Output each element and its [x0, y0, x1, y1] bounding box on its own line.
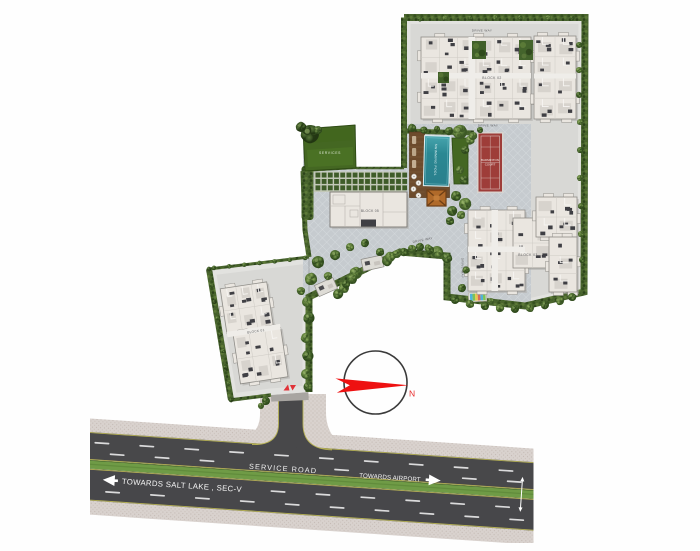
svg-text:DRIVE WAY: DRIVE WAY: [478, 124, 499, 128]
svg-text:SWIMMING POOL: SWIMMING POOL: [433, 144, 438, 177]
svg-text:DRIVE WAY: DRIVE WAY: [472, 29, 493, 33]
svg-text:BLOCK 02: BLOCK 02: [482, 76, 501, 80]
svg-text:BLOCK 05: BLOCK 05: [361, 209, 379, 213]
svg-text:N: N: [409, 389, 415, 399]
svg-text:COURT: COURT: [485, 163, 496, 167]
svg-text:DRIVE WAY: DRIVE WAY: [461, 258, 465, 279]
svg-text:BLOCK 03: BLOCK 03: [518, 253, 537, 257]
svg-text:BADMINTON: BADMINTON: [481, 158, 499, 162]
svg-text:SERVICES: SERVICES: [319, 151, 341, 155]
